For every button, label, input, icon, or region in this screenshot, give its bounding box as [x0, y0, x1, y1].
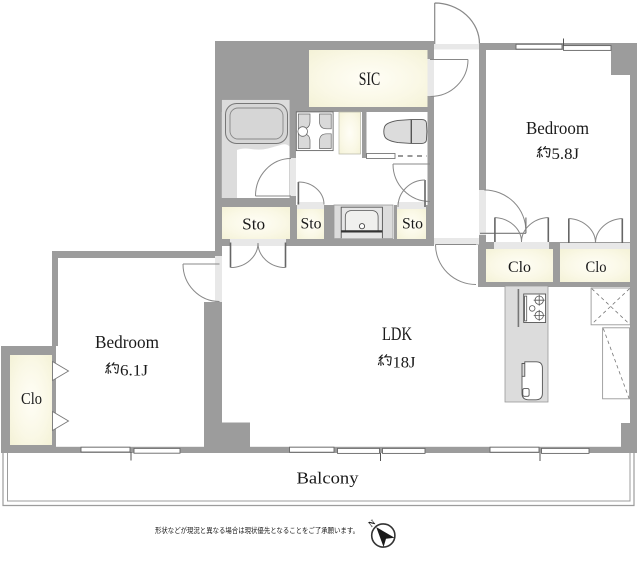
svg-text:Bedroom: Bedroom — [526, 118, 589, 138]
svg-text:Clo: Clo — [508, 259, 531, 276]
svg-text:形状などが現況と異なる場合は現状優先となることをご了承願いま: 形状などが現況と異なる場合は現状優先となることをご了承願います。 — [155, 526, 359, 535]
svg-text:5.8J: 5.8J — [552, 146, 580, 163]
svg-text:Bedroom: Bedroom — [95, 332, 159, 352]
svg-text:Clo: Clo — [586, 259, 607, 276]
svg-text:Sto: Sto — [402, 216, 423, 233]
svg-text:Clo: Clo — [21, 389, 42, 408]
svg-text:18J: 18J — [393, 355, 416, 372]
svg-text:SIC: SIC — [359, 69, 381, 90]
svg-text:Balcony: Balcony — [297, 469, 360, 488]
svg-text:Sto: Sto — [242, 215, 265, 234]
svg-text:Sto: Sto — [301, 216, 322, 233]
svg-text:6.1J: 6.1J — [120, 363, 148, 380]
svg-text:LDK: LDK — [382, 324, 412, 345]
